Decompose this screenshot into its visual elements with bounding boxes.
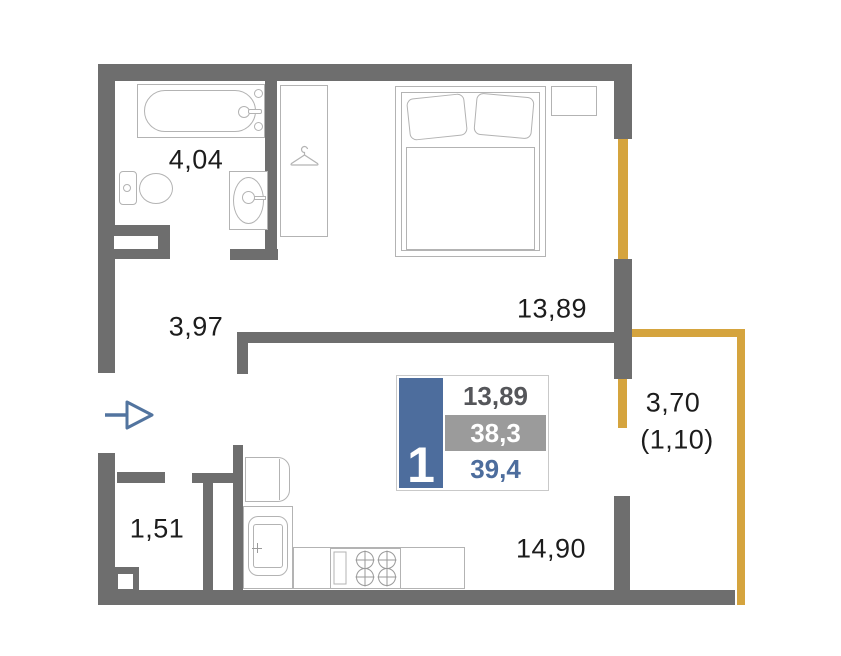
pillow xyxy=(406,93,468,141)
rooms-count: 1 xyxy=(399,378,443,488)
wall-segment xyxy=(98,590,735,605)
hanger-icon xyxy=(288,144,321,168)
wall-segment xyxy=(117,472,165,483)
wall-segment xyxy=(237,332,248,374)
wall-segment xyxy=(614,64,632,139)
area-label-hallway: 3,97 xyxy=(169,312,224,343)
balcony-edge xyxy=(737,329,745,605)
wall-segment xyxy=(98,64,632,81)
apartment-info-badge: 1 13,89 38,3 39,4 xyxy=(396,375,549,491)
area-label-bathroom: 4,04 xyxy=(169,145,224,176)
wall-segment xyxy=(614,496,630,590)
nightstand-icon xyxy=(551,86,597,116)
entry-arrow-icon xyxy=(102,398,156,432)
wall-segment xyxy=(237,332,632,343)
area-label-closet: 1,51 xyxy=(130,514,185,545)
fridge-icon xyxy=(245,457,290,502)
area-without-balcony-value: 38,3 xyxy=(445,415,546,452)
area-label-bedroom: 13,89 xyxy=(517,294,587,325)
floor-plan: 4,04 3,97 13,89 1,51 14,90 3,70 (1,10) 1… xyxy=(0,0,841,656)
wall-segment xyxy=(233,445,243,597)
pillow xyxy=(473,93,534,140)
balcony-door-window xyxy=(618,379,627,428)
wardrobe xyxy=(280,85,328,237)
wall-segment xyxy=(614,259,632,379)
window-segment xyxy=(618,139,628,259)
duct-shaft-opening xyxy=(114,236,158,249)
stove-icon xyxy=(330,548,401,589)
wall-segment xyxy=(230,249,278,260)
area-label-kitchen-living: 14,90 xyxy=(516,534,586,565)
corner-duct-opening xyxy=(118,574,133,589)
sink-drain-icon xyxy=(252,543,262,553)
wall-segment xyxy=(203,477,213,590)
balcony-edge xyxy=(632,329,745,337)
area-label-balcony: 3,70 xyxy=(646,388,701,419)
area-label-balcony-reduced: (1,10) xyxy=(640,425,714,456)
bathtub-icon xyxy=(137,84,265,138)
living-area-value: 13,89 xyxy=(445,378,546,415)
total-area-value: 39,4 xyxy=(445,451,546,488)
